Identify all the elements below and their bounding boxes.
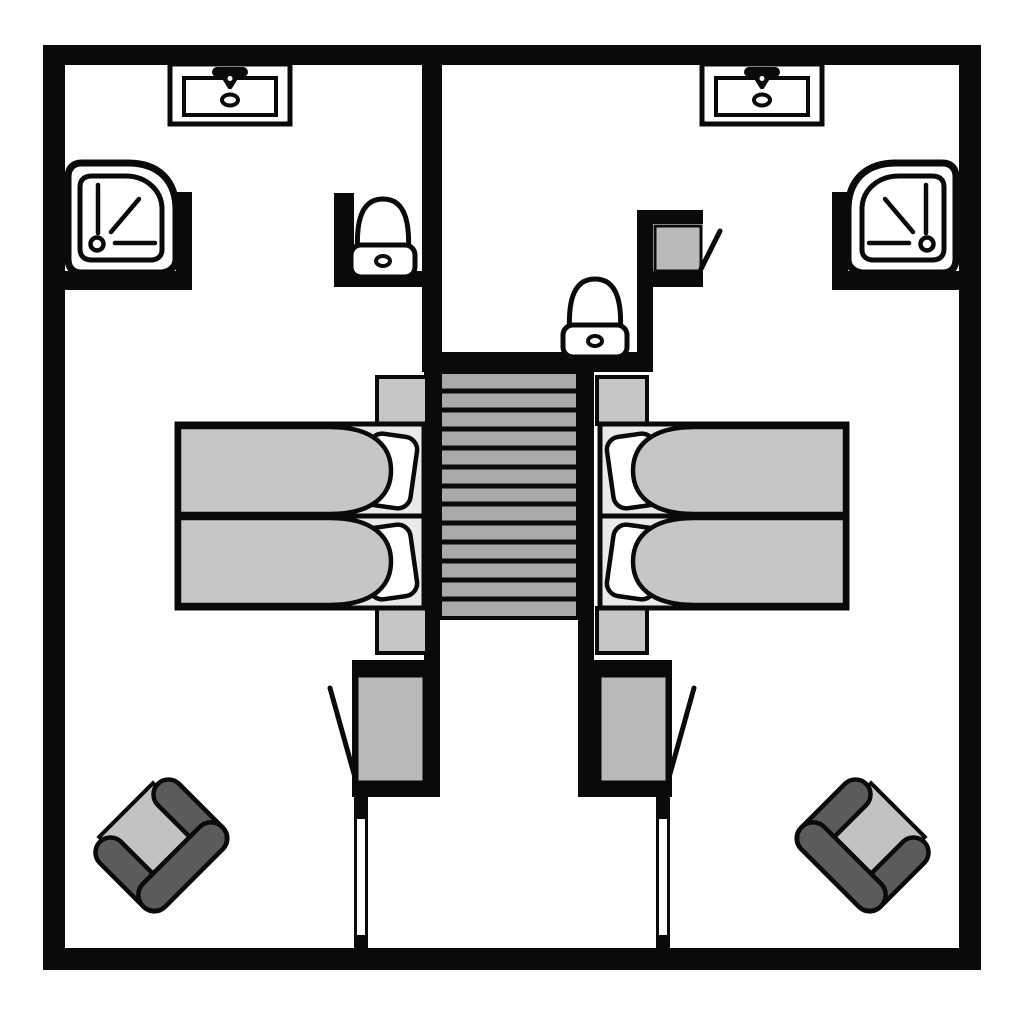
central-dividing-wall [422, 65, 442, 355]
wall-left [43, 45, 65, 970]
vanity-left [170, 64, 290, 124]
floor-plan-canvas [0, 0, 1024, 1024]
beds-right [597, 377, 847, 653]
shower-right [832, 163, 959, 290]
staircase [440, 372, 578, 618]
shower-left [65, 163, 192, 290]
wardrobe-entry-left [330, 660, 438, 948]
floor-plan [0, 0, 1024, 1024]
wall-right [959, 45, 981, 970]
wall-bottom [43, 948, 981, 970]
vanity-right [702, 64, 822, 124]
armchair-right [790, 770, 937, 917]
beds-left [177, 377, 427, 653]
unit-left [65, 64, 438, 948]
armchair-left [86, 770, 233, 917]
right-closet-wall-bottom [637, 271, 703, 287]
unit-right [563, 64, 959, 948]
wardrobe-entry-right [586, 660, 694, 948]
toilet-right [563, 279, 627, 357]
closet-door-swing-line [701, 231, 720, 269]
right-closet-wall-top [637, 210, 703, 224]
toilet-left [351, 199, 415, 277]
closet-right [655, 226, 701, 271]
